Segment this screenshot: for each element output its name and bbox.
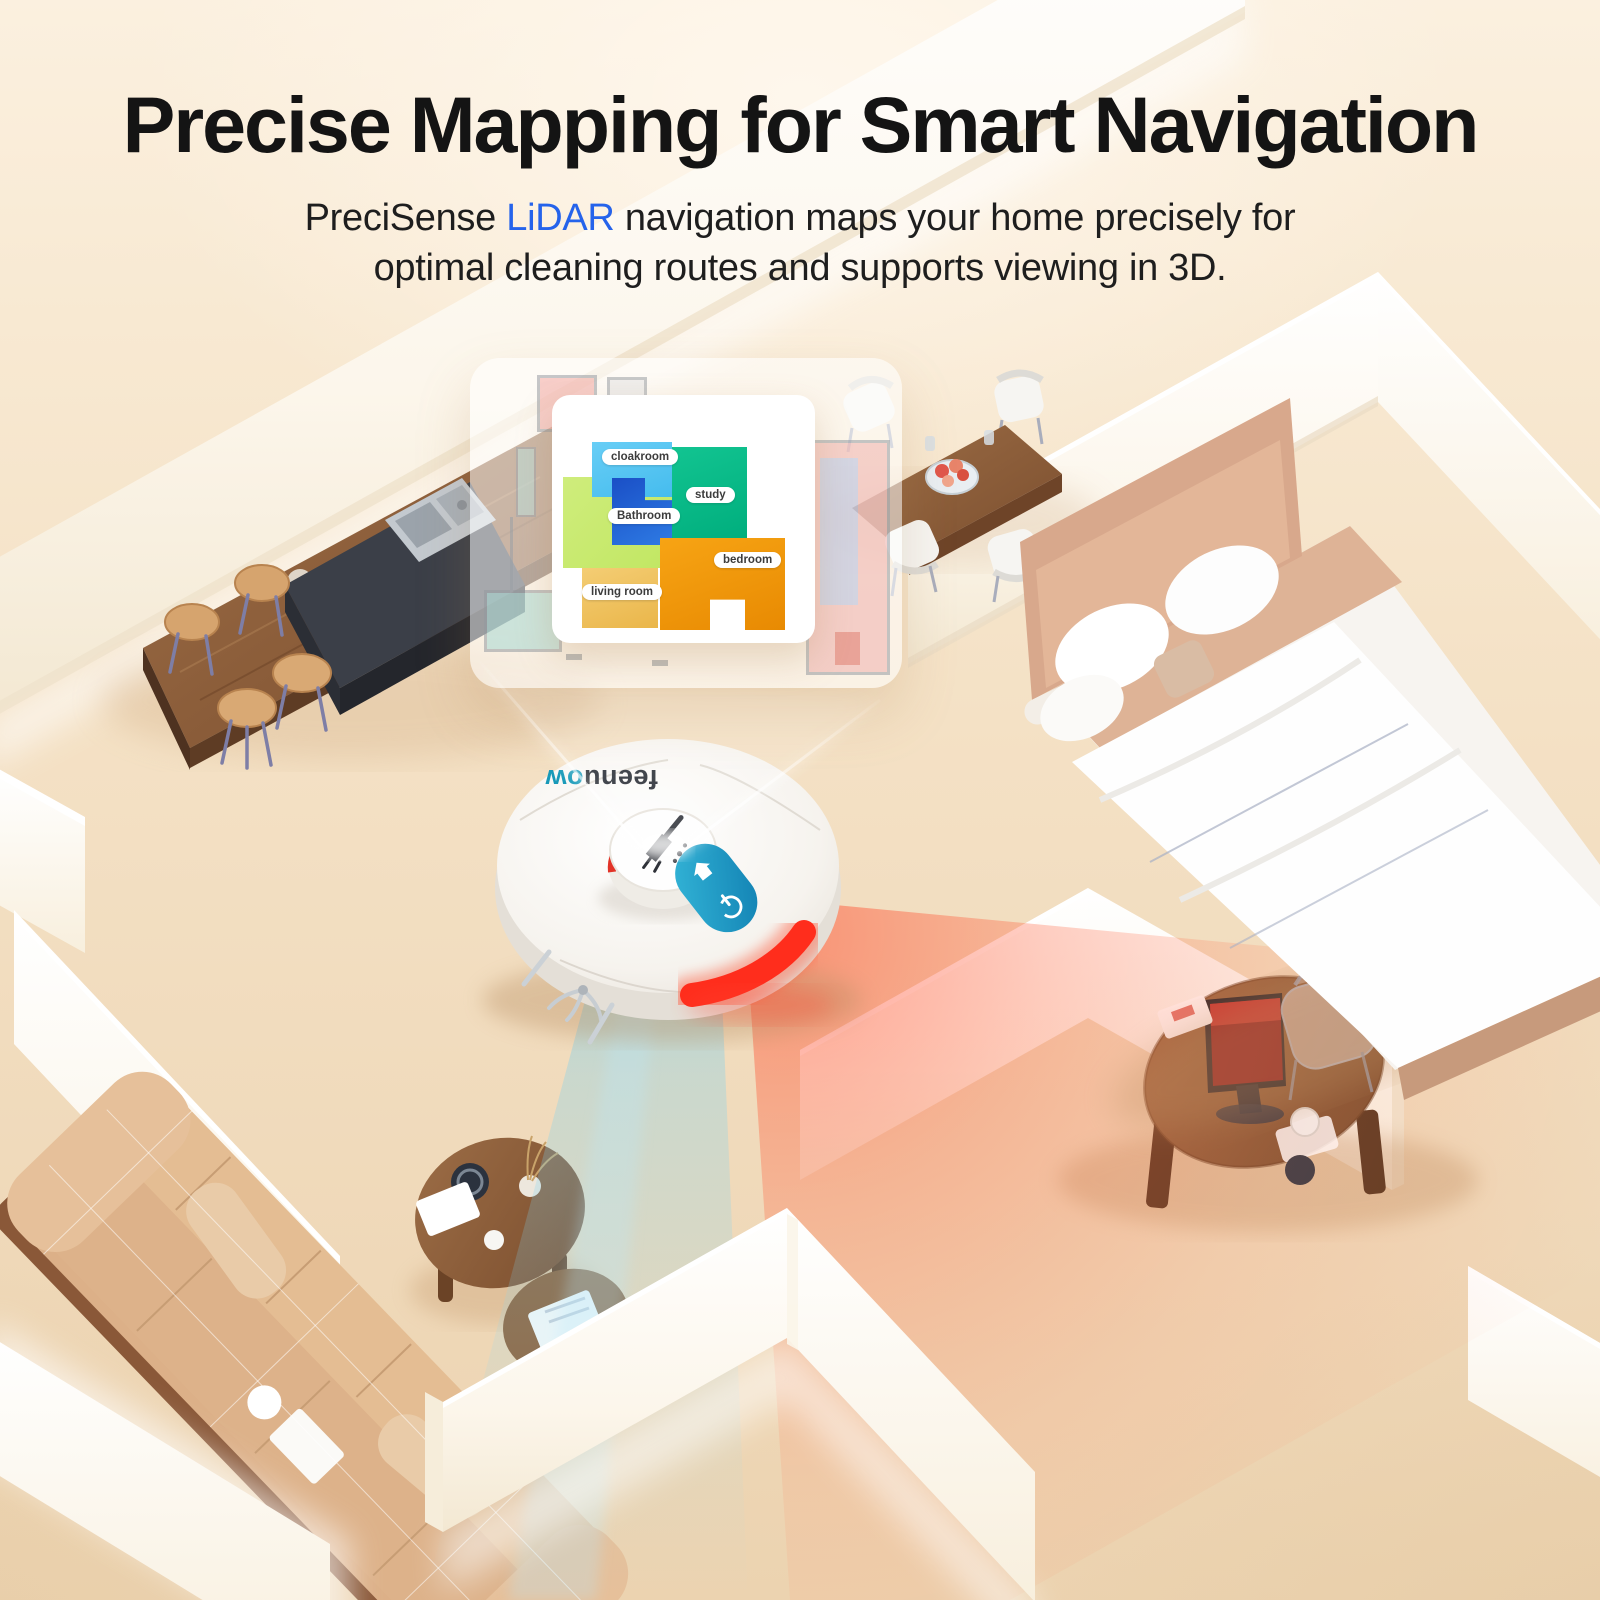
marketing-page: feenuow xyxy=(0,0,1600,1600)
subtitle-pre: PreciSense xyxy=(305,197,496,239)
page-title: Precise Mapping for Smart Navigation xyxy=(0,84,1600,167)
page-subtitle: PreciSense LiDAR navigation maps your ho… xyxy=(0,193,1600,293)
subtitle-line2: optimal cleaning routes and supports vie… xyxy=(374,247,1227,289)
subtitle-line1-rest: navigation maps your home precisely for xyxy=(625,197,1296,239)
header: Precise Mapping for Smart Navigation Pre… xyxy=(0,84,1600,293)
subtitle-highlight-lidar: LiDAR xyxy=(506,197,614,239)
